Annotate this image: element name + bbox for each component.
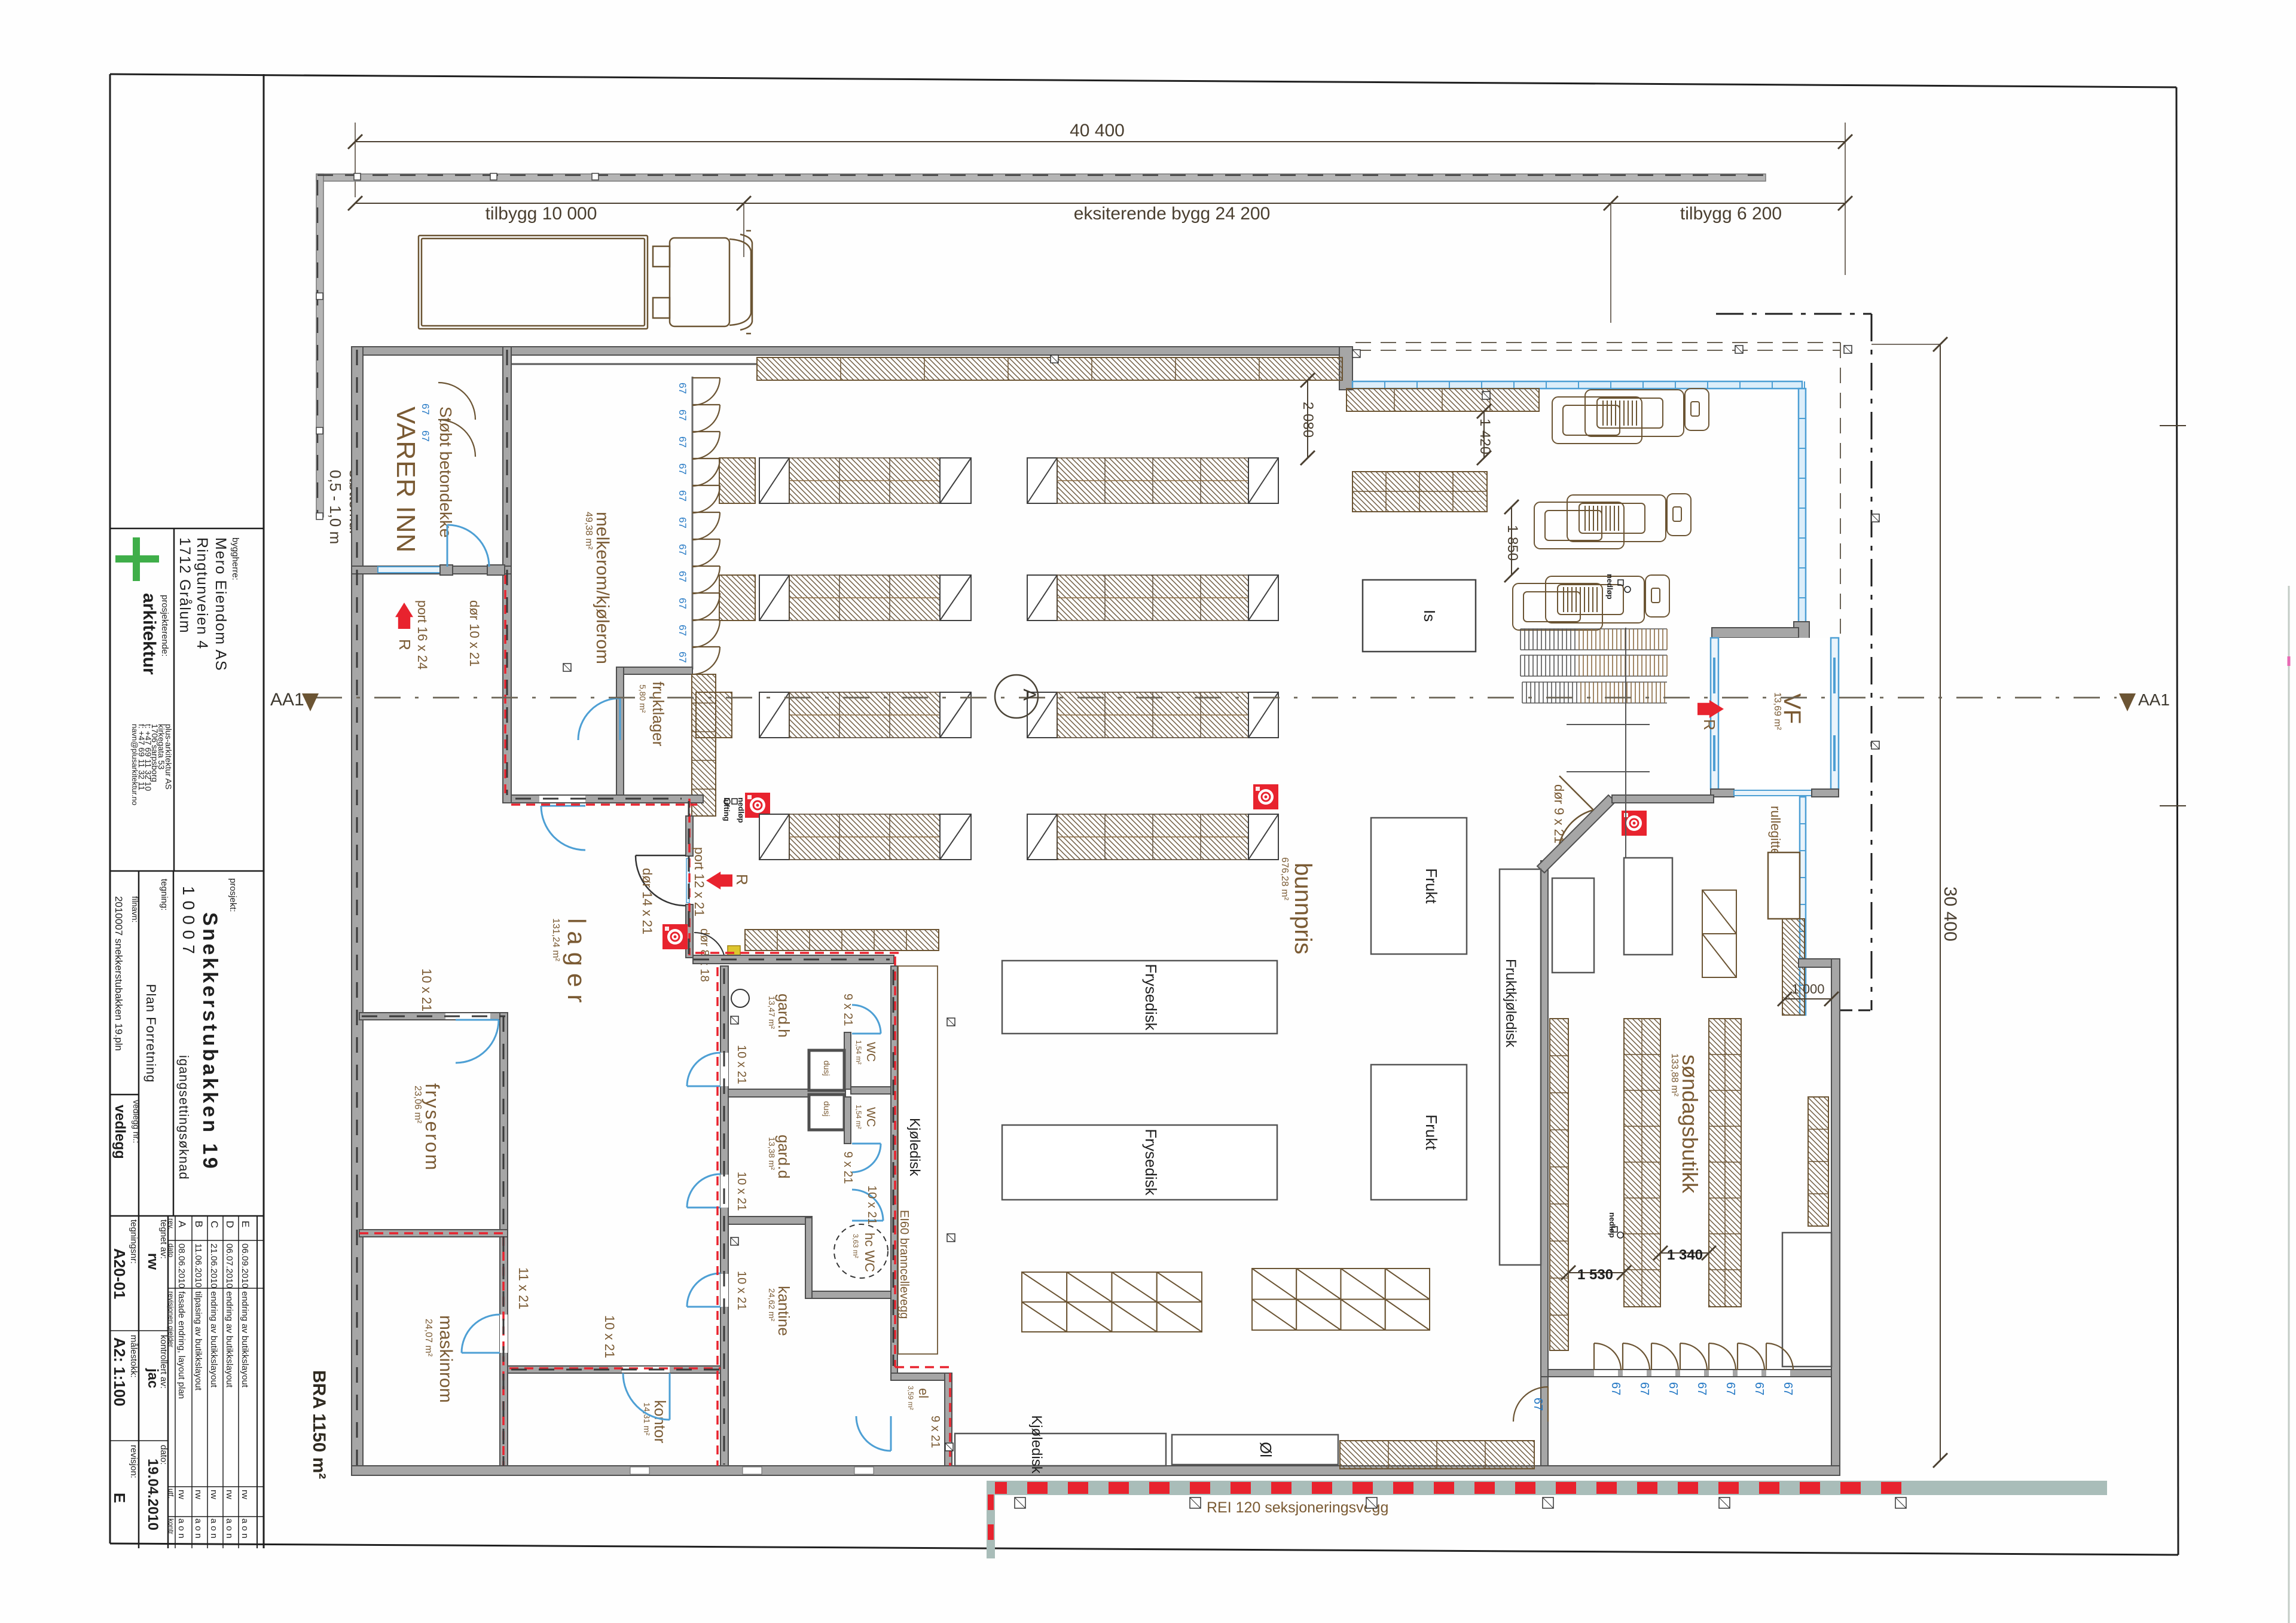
svg-text:dør 10 x 21: dør 10 x 21 xyxy=(467,600,482,667)
svg-text:bunnpris: bunnpris xyxy=(1290,863,1316,954)
svg-text:67: 67 xyxy=(1752,1382,1766,1395)
svg-text:fryserom: fryserom xyxy=(422,1083,443,1172)
svg-text:rw: rw xyxy=(145,1253,161,1270)
svg-text:dusj: dusj xyxy=(822,1060,832,1076)
svg-text:A: A xyxy=(176,1221,188,1228)
svg-text:67: 67 xyxy=(677,436,688,448)
svg-text:C: C xyxy=(209,1221,220,1228)
svg-text:A20-01: A20-01 xyxy=(111,1248,129,1299)
svg-text:13,38 m²: 13,38 m² xyxy=(767,1137,777,1170)
svg-text:VARER INN: VARER INN xyxy=(391,406,420,553)
svg-text:06.09.2010: 06.09.2010 xyxy=(240,1243,250,1288)
svg-text:rw: rw xyxy=(193,1490,203,1499)
svg-text:a o n: a o n xyxy=(224,1518,234,1538)
svg-text:Plan Forretning: Plan Forretning xyxy=(143,984,158,1083)
svg-text:vedlegg nr.:: vedlegg nr.: xyxy=(132,1100,141,1143)
svg-text:30 400: 30 400 xyxy=(1940,887,1960,942)
svg-text:dør 14 x 21: dør 14 x 21 xyxy=(640,868,655,934)
svg-text:BRA 1150 m²: BRA 1150 m² xyxy=(309,1370,329,1479)
svg-text:67: 67 xyxy=(1609,1382,1622,1395)
svg-text:67: 67 xyxy=(677,598,688,609)
svg-text:endring av butikkslayout: endring av butikkslayout xyxy=(240,1291,250,1388)
svg-text:10 x 21: 10 x 21 xyxy=(735,1172,748,1211)
svg-text:10 x 21: 10 x 21 xyxy=(735,1045,748,1084)
svg-text:fasade endring, layout plan: fasade endring, layout plan xyxy=(176,1291,187,1399)
svg-text:byggherre:: byggherre: xyxy=(230,537,240,580)
svg-text:tegning:: tegning: xyxy=(159,879,169,910)
svg-text:arkitektur: arkitektur xyxy=(139,593,159,675)
svg-text:10 x 21: 10 x 21 xyxy=(735,1271,748,1310)
svg-text:vedlegg: vedlegg xyxy=(112,1105,128,1159)
svg-text:Støbt betondekke: Støbt betondekke xyxy=(436,406,455,537)
svg-text:filnavn:: filnavn: xyxy=(130,896,140,922)
svg-text:67: 67 xyxy=(677,490,688,502)
svg-text:21.06.2010: 21.06.2010 xyxy=(209,1243,219,1288)
svg-text:Øl: Øl xyxy=(1257,1442,1275,1457)
svg-text:9 x 21: 9 x 21 xyxy=(841,1151,854,1184)
svg-text:kantine: kantine xyxy=(775,1286,793,1336)
svg-text:eksiterende bygg 24 200: eksiterende bygg 24 200 xyxy=(1074,204,1271,224)
svg-text:a o n: a o n xyxy=(193,1518,203,1538)
svg-text:fruktlager: fruktlager xyxy=(649,681,667,747)
svg-text:67: 67 xyxy=(420,404,431,415)
svg-text:40 400: 40 400 xyxy=(1070,121,1125,140)
svg-text:1712 Grålum: 1712 Grålum xyxy=(176,537,193,634)
svg-text:endring av butikkslayout: endring av butikkslayout xyxy=(209,1291,219,1388)
svg-text:1 000: 1 000 xyxy=(1791,982,1824,997)
svg-text:0,5 - 1,0 m: 0,5 - 1,0 m xyxy=(326,470,344,544)
svg-text:10 x 21: 10 x 21 xyxy=(602,1315,617,1358)
svg-text:67: 67 xyxy=(677,409,688,421)
svg-text:port 16 x 24: port 16 x 24 xyxy=(415,600,430,670)
svg-text:B: B xyxy=(193,1221,204,1227)
svg-text:A2: 1:100: A2: 1:100 xyxy=(111,1337,129,1407)
svg-text:11 x 21: 11 x 21 xyxy=(516,1267,531,1310)
svg-text:målestokk:: målestokk: xyxy=(129,1335,139,1378)
svg-text:A: A xyxy=(1019,689,1039,701)
svg-text:2010007 snekkerstubakken 19.pl: 2010007 snekkerstubakken 19.pln xyxy=(113,896,124,1051)
svg-text:AA1: AA1 xyxy=(270,690,304,710)
svg-text:gard.h: gard.h xyxy=(775,994,793,1038)
svg-text:1 340: 1 340 xyxy=(1667,1247,1703,1263)
svg-text:a o n: a o n xyxy=(176,1518,187,1538)
svg-text:AA1: AA1 xyxy=(2138,690,2170,709)
svg-text:67: 67 xyxy=(1695,1382,1708,1395)
svg-text:Frukt: Frukt xyxy=(1422,1114,1440,1150)
svg-text:maskinrom: maskinrom xyxy=(436,1315,456,1403)
svg-text:10007: 10007 xyxy=(179,886,198,959)
svg-text:3,63 m²: 3,63 m² xyxy=(851,1234,860,1258)
svg-text:08.06.2010: 08.06.2010 xyxy=(176,1243,187,1288)
svg-text:Ringtunveien 4: Ringtunveien 4 xyxy=(194,537,210,650)
svg-text:Is: Is xyxy=(1421,610,1439,622)
svg-text:D: D xyxy=(224,1221,236,1228)
svg-text:kontr: kontr xyxy=(167,1518,175,1535)
svg-text:1 530: 1 530 xyxy=(1577,1267,1613,1283)
svg-text:67: 67 xyxy=(1666,1382,1680,1395)
svg-text:67: 67 xyxy=(677,463,688,475)
svg-text:67: 67 xyxy=(677,625,688,636)
svg-text:9 x 21: 9 x 21 xyxy=(929,1416,942,1448)
svg-text:EI60 branncellevegg: EI60 branncellevegg xyxy=(897,1210,911,1319)
svg-text:24,07 m²: 24,07 m² xyxy=(423,1319,433,1357)
svg-text:R: R xyxy=(1700,719,1718,730)
svg-text:5,80 m²: 5,80 m² xyxy=(638,684,648,713)
svg-text:24,62 m²: 24,62 m² xyxy=(767,1288,777,1322)
svg-text:hc WC: hc WC xyxy=(862,1233,877,1272)
svg-text:utf.: utf. xyxy=(167,1488,175,1499)
svg-text:WC: WC xyxy=(864,1107,877,1127)
svg-text:lager: lager xyxy=(563,918,591,1010)
svg-text:2 080: 2 080 xyxy=(1300,402,1316,438)
svg-text:rw: rw xyxy=(224,1490,234,1499)
svg-text:11.06.2010: 11.06.2010 xyxy=(193,1243,203,1288)
svg-text:R: R xyxy=(396,639,414,650)
svg-text:el: el xyxy=(916,1388,931,1398)
svg-text:nedløp: nedløp xyxy=(737,797,746,823)
svg-text:10 x 21: 10 x 21 xyxy=(419,968,434,1011)
svg-text:Mero Eiendom AS: Mero Eiendom AS xyxy=(212,537,229,671)
svg-text:REI 120 seksjoneringsvegg: REI 120 seksjoneringsvegg xyxy=(1207,1499,1388,1516)
svg-text:Fruktkjøledisk: Fruktkjøledisk xyxy=(1503,959,1519,1048)
svg-text:revisjon:: revisjon: xyxy=(129,1445,139,1478)
svg-text:67: 67 xyxy=(1638,1382,1651,1395)
svg-text:13,47 m²: 13,47 m² xyxy=(767,996,777,1029)
svg-text:1,54 m²: 1,54 m² xyxy=(854,1105,863,1129)
svg-text:tilbygg 10 000: tilbygg 10 000 xyxy=(486,204,597,224)
svg-text:endring av butikkslayout: endring av butikkslayout xyxy=(224,1291,234,1388)
svg-text:nedløp: nedløp xyxy=(1608,1212,1617,1238)
svg-text:dusj: dusj xyxy=(822,1101,832,1117)
svg-text:prosjekt:: prosjekt: xyxy=(228,878,238,912)
svg-text:67: 67 xyxy=(677,652,688,663)
svg-text:Kjøledisk: Kjøledisk xyxy=(1028,1415,1045,1474)
svg-text:Frysedisk: Frysedisk xyxy=(1142,964,1160,1031)
svg-text:a o n: a o n xyxy=(240,1518,250,1538)
svg-text:rw: rw xyxy=(209,1490,219,1499)
svg-text:kontor: kontor xyxy=(651,1400,669,1444)
svg-text:67: 67 xyxy=(677,383,688,394)
svg-text:67: 67 xyxy=(677,544,688,555)
svg-text:131,24 m²: 131,24 m² xyxy=(551,918,561,962)
svg-text:port 12 x 21: port 12 x 21 xyxy=(692,847,707,916)
svg-text:10 x 21: 10 x 21 xyxy=(865,1185,878,1225)
svg-text:133,88 m²: 133,88 m² xyxy=(1669,1053,1680,1097)
svg-text:1,54 m²: 1,54 m² xyxy=(854,1040,863,1065)
svg-text:Frysedisk: Frysedisk xyxy=(1142,1129,1160,1196)
svg-text:1 420: 1 420 xyxy=(1477,418,1493,454)
svg-text:R: R xyxy=(733,874,751,885)
svg-text:tegningsnr:: tegningsnr: xyxy=(129,1219,139,1264)
svg-text:a o n: a o n xyxy=(209,1518,219,1538)
svg-text:3,59 m²: 3,59 m² xyxy=(906,1386,915,1410)
svg-text:676,28 m²: 676,28 m² xyxy=(1280,857,1290,901)
svg-text:tilbygg 6 200: tilbygg 6 200 xyxy=(1680,204,1782,224)
svg-text:nedløp: nedløp xyxy=(1605,574,1614,600)
svg-text:tilpasing av butikkslayout: tilpasing av butikkslayout xyxy=(193,1291,203,1391)
svg-text:19.04.2010: 19.04.2010 xyxy=(145,1459,161,1530)
svg-text:9 x 21: 9 x 21 xyxy=(841,994,854,1026)
svg-text:Snekkerstubakken 19: Snekkerstubakken 19 xyxy=(199,912,221,1171)
svg-text:søndagsbutikk: søndagsbutikk xyxy=(1678,1055,1702,1194)
svg-text:67: 67 xyxy=(677,517,688,528)
svg-text:E: E xyxy=(240,1221,251,1227)
svg-text:67: 67 xyxy=(1531,1398,1544,1411)
svg-text:1 850: 1 850 xyxy=(1504,525,1521,561)
svg-text:67: 67 xyxy=(677,571,688,582)
svg-text:67: 67 xyxy=(1781,1382,1794,1395)
svg-text:melkerom/kjølerom: melkerom/kjølerom xyxy=(593,512,612,664)
svg-text:navn@plusarkitektur.no: navn@plusarkitektur.no xyxy=(130,724,139,805)
svg-text:67: 67 xyxy=(1724,1382,1737,1395)
svg-text:E: E xyxy=(111,1493,129,1503)
svg-text:06.07.2010: 06.07.2010 xyxy=(224,1243,234,1288)
svg-text:49,38 m²: 49,38 m² xyxy=(584,512,594,550)
svg-text:23,06 m²: 23,06 m² xyxy=(413,1086,423,1124)
svg-text:Frukt: Frukt xyxy=(1422,868,1440,904)
svg-text:igangsettingsøknad: igangsettingsøknad xyxy=(176,1055,191,1180)
svg-text:dør 9 x 21: dør 9 x 21 xyxy=(1552,784,1567,843)
svg-text:Kjøledisk: Kjøledisk xyxy=(906,1118,923,1176)
svg-text:gard.d: gard.d xyxy=(775,1135,793,1179)
svg-text:prosjekterende:: prosjekterende: xyxy=(160,595,170,656)
svg-text:jac: jac xyxy=(145,1368,161,1388)
svg-text:WC: WC xyxy=(864,1042,877,1062)
svg-text:14,31 m²: 14,31 m² xyxy=(642,1402,652,1436)
svg-text:rw: rw xyxy=(176,1490,187,1499)
svg-text:rw: rw xyxy=(240,1490,250,1499)
svg-text:67: 67 xyxy=(420,430,431,442)
